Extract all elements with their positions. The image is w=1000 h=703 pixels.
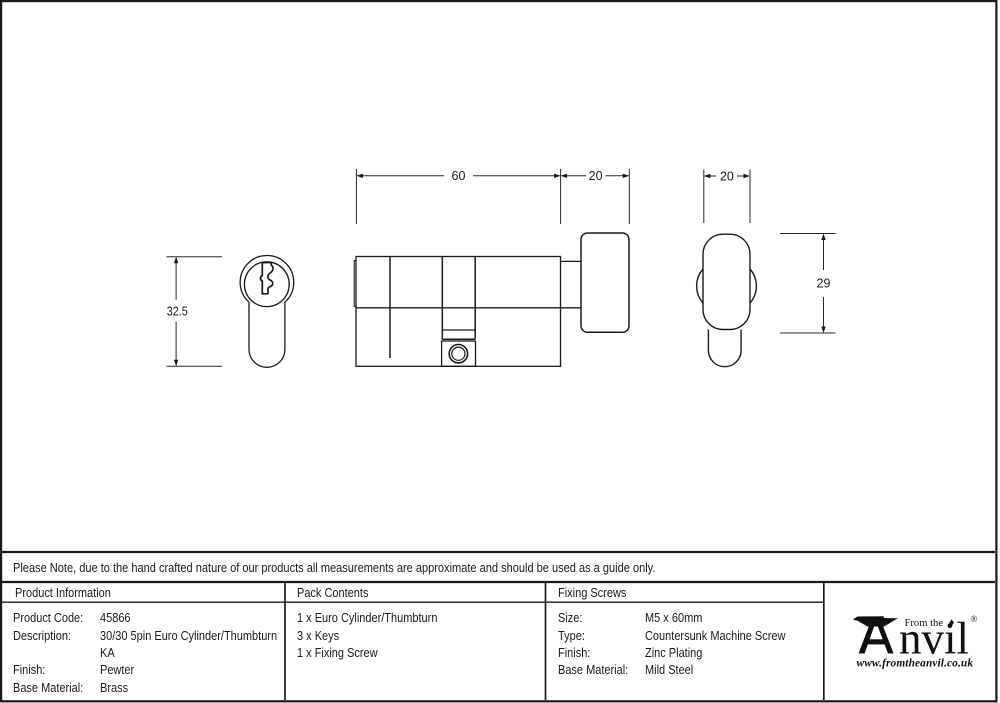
- svg-text:www.fromtheanvil.co.uk: www.fromtheanvil.co.uk: [857, 658, 974, 670]
- svg-text:®: ®: [971, 614, 978, 624]
- svg-text:29: 29: [817, 277, 831, 291]
- svg-text:32.5: 32.5: [167, 304, 188, 318]
- svg-text:20: 20: [720, 169, 734, 183]
- svg-text:nvil: nvil: [899, 613, 969, 663]
- svg-text:20: 20: [589, 169, 603, 183]
- svg-text:60: 60: [452, 169, 466, 183]
